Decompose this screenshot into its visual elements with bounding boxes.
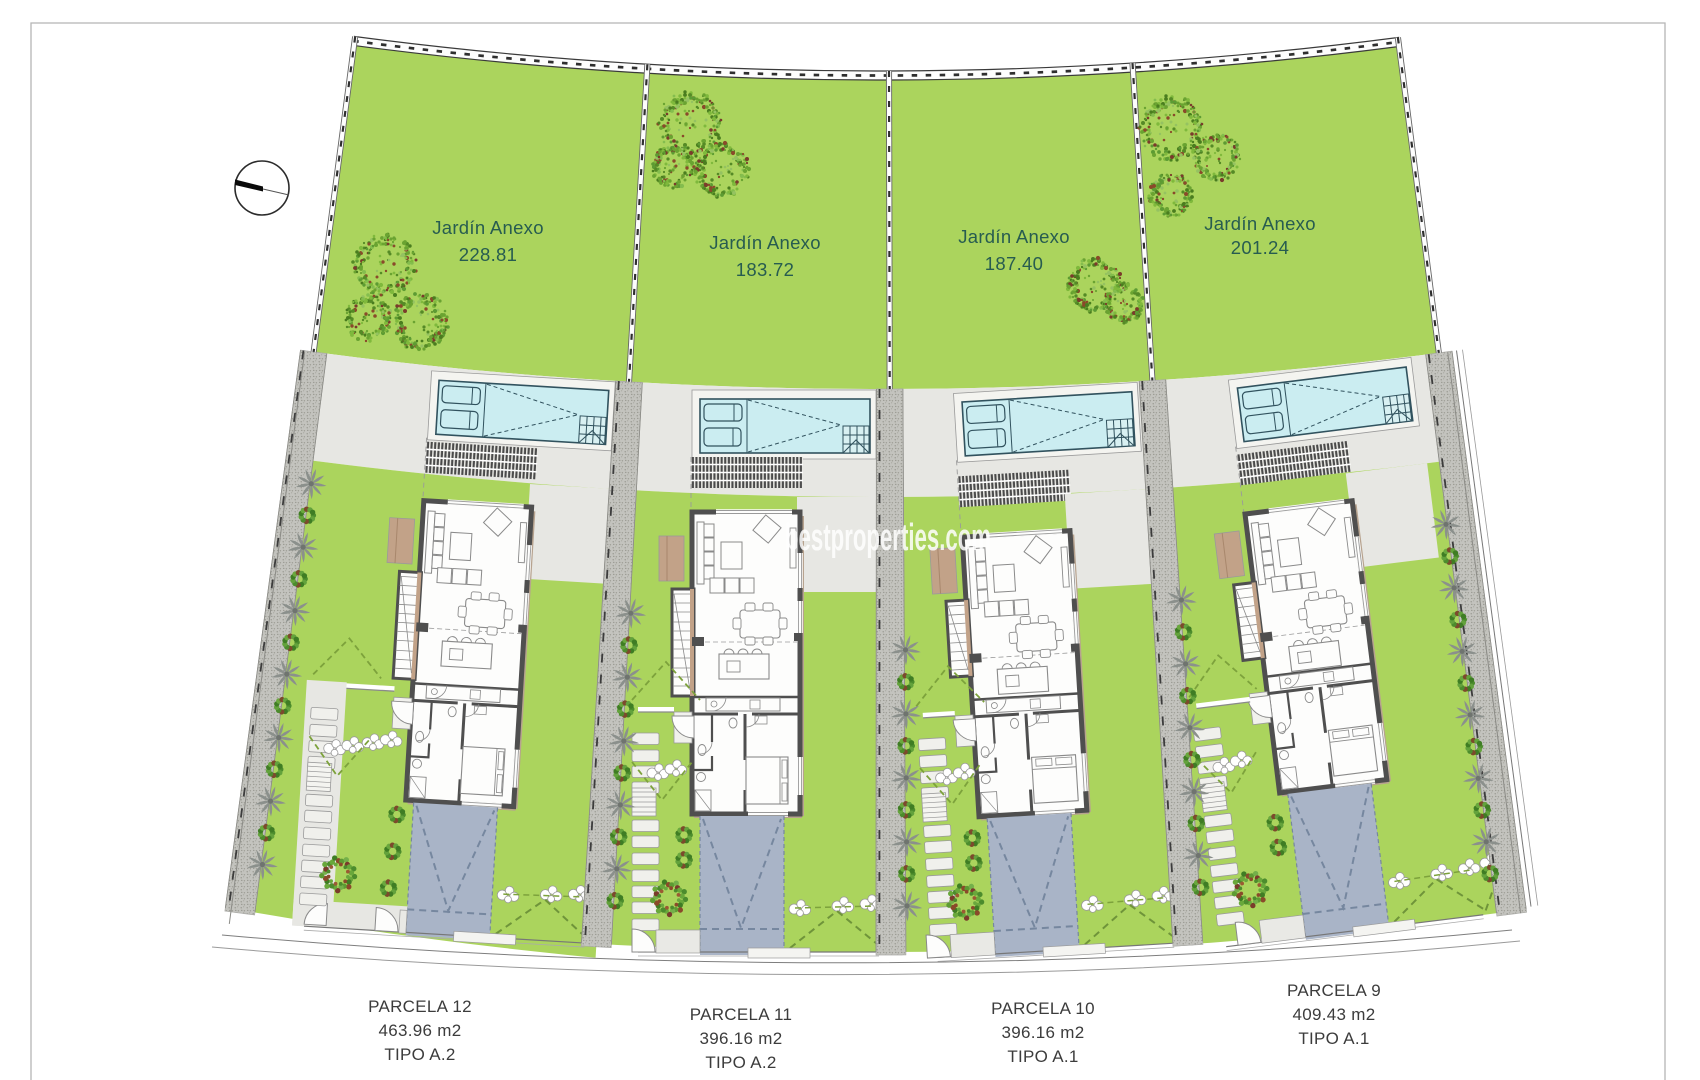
svg-text:bestproperties.com: bestproperties.com — [785, 517, 991, 559]
svg-text:187.40: 187.40 — [985, 253, 1043, 274]
svg-text:463.96 m2: 463.96 m2 — [378, 1021, 461, 1040]
svg-text:TIPO A.2: TIPO A.2 — [384, 1045, 455, 1064]
svg-text:201.24: 201.24 — [1231, 237, 1289, 258]
svg-text:PARCELA 10: PARCELA 10 — [991, 999, 1095, 1018]
svg-text:TIPO A.2: TIPO A.2 — [705, 1053, 776, 1072]
svg-text:PARCELA 9: PARCELA 9 — [1287, 981, 1381, 1000]
svg-text:Jardín Anexo: Jardín Anexo — [958, 226, 1070, 247]
svg-text:TIPO A.1: TIPO A.1 — [1298, 1029, 1369, 1048]
svg-text:396.16 m2: 396.16 m2 — [699, 1029, 782, 1048]
svg-text:TIPO A.1: TIPO A.1 — [1007, 1047, 1078, 1066]
svg-text:396.16 m2: 396.16 m2 — [1001, 1023, 1084, 1042]
svg-text:183.72: 183.72 — [736, 259, 794, 280]
svg-text:Jardín Anexo: Jardín Anexo — [432, 217, 544, 238]
svg-text:228.81: 228.81 — [459, 244, 517, 265]
svg-text:PARCELA 11: PARCELA 11 — [690, 1005, 793, 1024]
svg-text:PARCELA 12: PARCELA 12 — [368, 997, 472, 1016]
svg-text:Jardín Anexo: Jardín Anexo — [709, 232, 821, 253]
svg-text:Jardín Anexo: Jardín Anexo — [1204, 213, 1316, 234]
svg-text:409.43 m2: 409.43 m2 — [1292, 1005, 1375, 1024]
